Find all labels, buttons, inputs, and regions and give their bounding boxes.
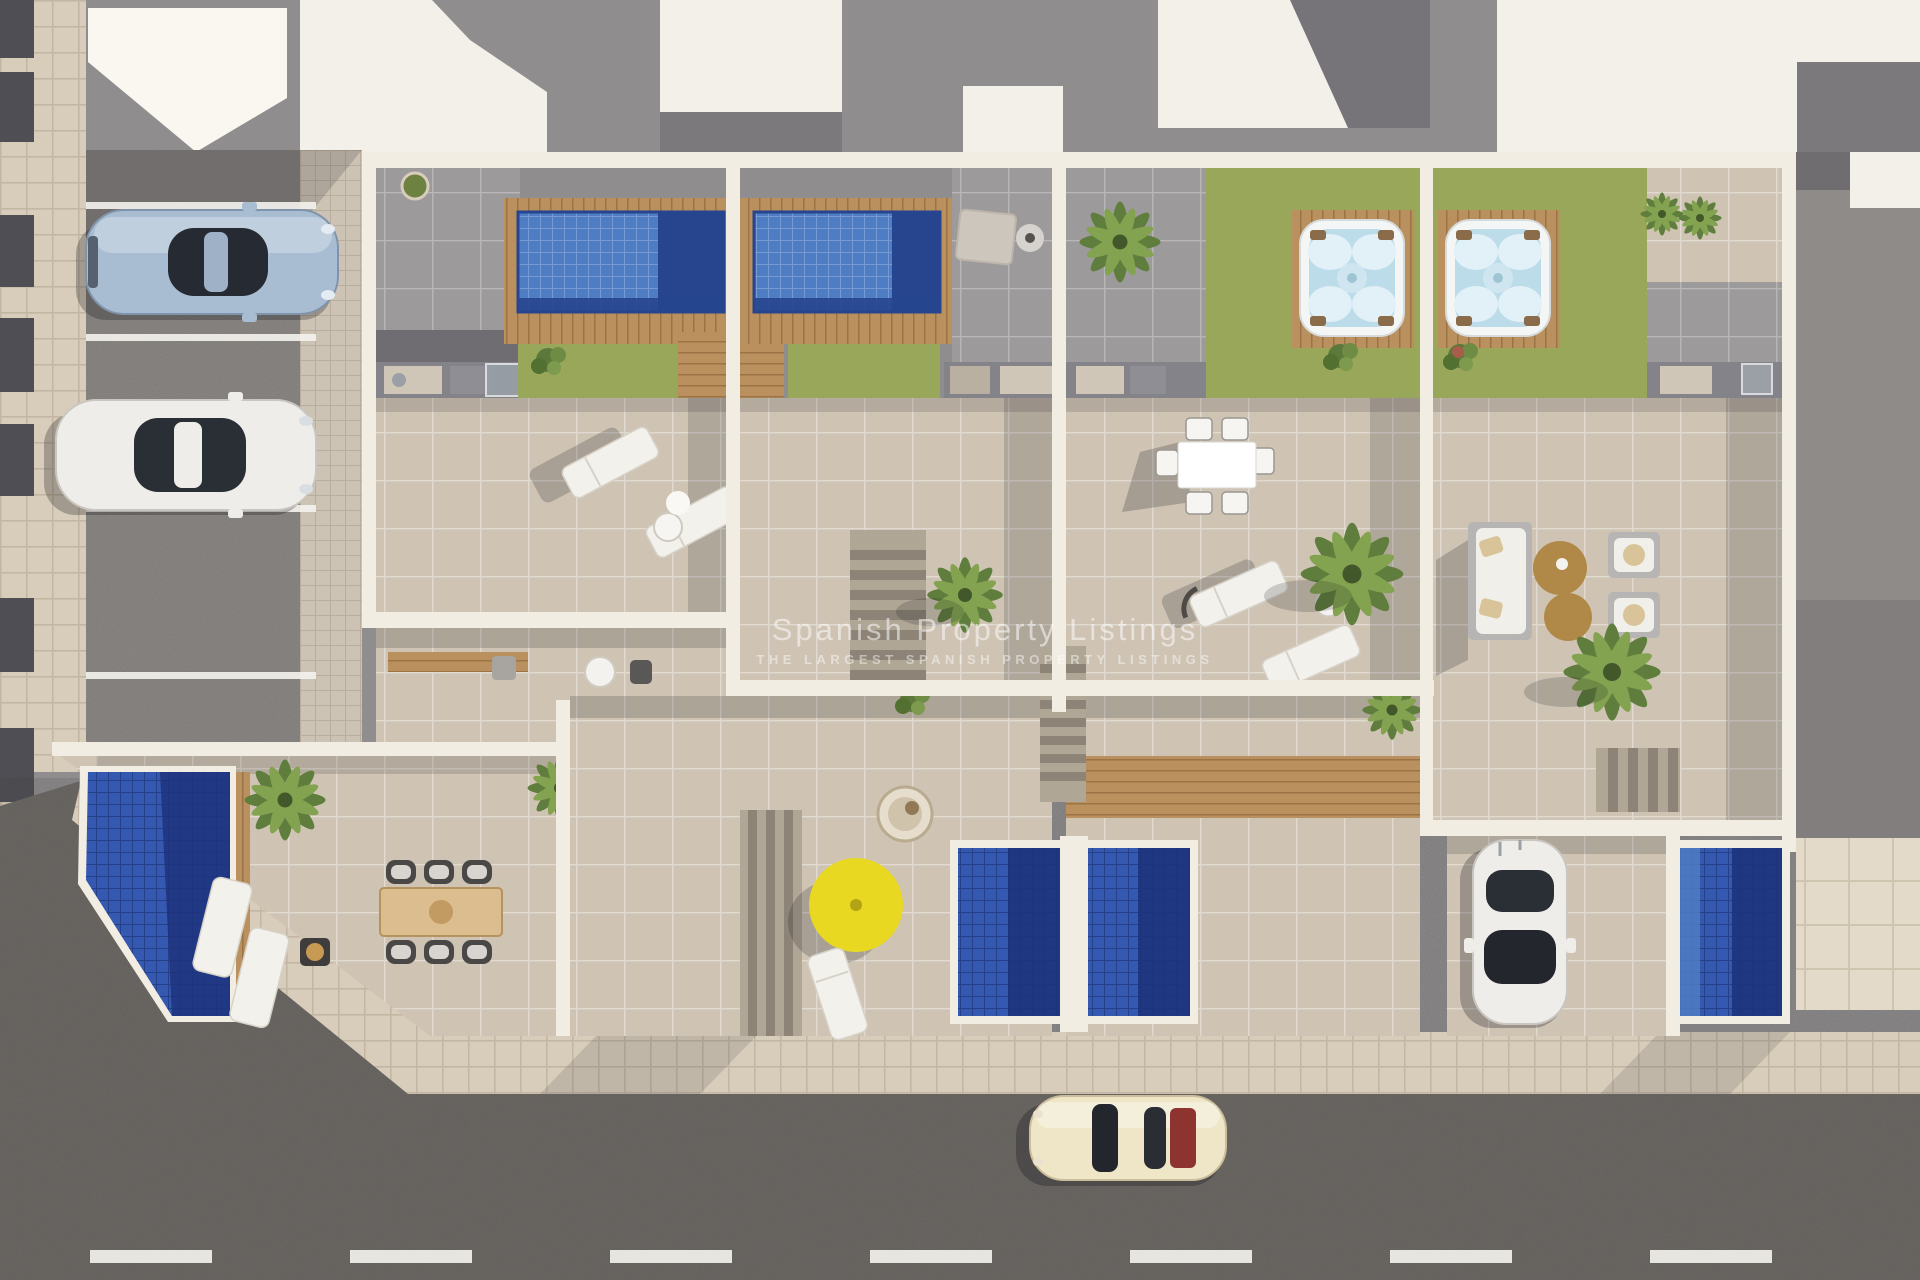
sidewalk-left-strip	[34, 0, 86, 772]
pool-edge	[754, 298, 940, 312]
unit3-roof-terrace	[1066, 166, 1420, 720]
neighbor-building-right	[1796, 152, 1920, 1010]
gray-patio	[376, 166, 520, 332]
wall-shadow	[1433, 398, 1782, 412]
white-roof	[660, 0, 842, 112]
wall-shadow	[1370, 398, 1420, 680]
dining-table	[1178, 442, 1256, 488]
garden-wall	[52, 742, 564, 756]
patio-shadow	[376, 330, 520, 362]
wall-shadow	[376, 628, 740, 648]
unit4-roof-terrace	[1433, 166, 1782, 820]
chair	[630, 660, 652, 684]
white-roof-corner	[1850, 152, 1920, 208]
rear-vent	[88, 236, 98, 288]
planter	[492, 656, 516, 680]
car-mirror	[228, 509, 243, 518]
pool-side-wall	[1666, 836, 1680, 1036]
round-coffee-table	[1544, 593, 1592, 641]
outdoor-shower	[1742, 364, 1772, 394]
bbq-grill	[1130, 366, 1166, 394]
white-roof	[1797, 0, 1920, 62]
palm-plant	[1080, 202, 1161, 283]
windshield	[1484, 930, 1556, 984]
pool-deep-end	[658, 212, 724, 312]
headlight	[1033, 1110, 1043, 1118]
bistro-table	[585, 657, 615, 687]
unit4-ground	[1447, 836, 1790, 1036]
wall-front-unit1	[362, 612, 740, 628]
small-palm	[1640, 192, 1683, 235]
paver-court	[1796, 838, 1920, 1010]
car-mirror	[1566, 938, 1576, 953]
car-mirror	[242, 313, 257, 322]
wall-shadow	[740, 398, 1052, 412]
garden-dining-set	[380, 860, 502, 964]
headlight	[321, 224, 335, 234]
staircase	[1596, 748, 1680, 812]
unit1-roof-terrace	[376, 166, 745, 612]
roof-shade	[1796, 600, 1920, 838]
classic-car	[1016, 1096, 1226, 1186]
outdoor-shower	[486, 364, 520, 396]
pool-shadow	[1138, 848, 1190, 1016]
pool-edge	[518, 298, 724, 312]
wall-shadow	[1004, 398, 1052, 680]
headlight	[299, 416, 313, 426]
pool-deep-end	[892, 212, 940, 312]
outdoor-kitchen-counter	[1660, 366, 1712, 394]
palm-shadow	[1524, 677, 1608, 707]
wall-left	[362, 152, 376, 628]
roof-shadow	[1797, 62, 1920, 166]
sofa-shadow	[1436, 540, 1468, 676]
pool-shadow	[1732, 848, 1782, 1016]
hot-tub-1	[1292, 210, 1414, 348]
potted-plant	[402, 173, 428, 199]
cup	[1556, 558, 1568, 570]
palm-shadow	[896, 598, 964, 626]
pool-divider-wall	[1060, 836, 1088, 1032]
rear-window	[1486, 870, 1554, 912]
windshield	[1092, 1104, 1118, 1172]
wall-front-unit4	[1433, 820, 1795, 836]
rear-window	[1144, 1107, 1166, 1169]
side-table	[654, 513, 682, 541]
car-mirror	[242, 202, 257, 211]
garden-wall-side	[556, 700, 570, 1036]
wall-right	[1782, 152, 1796, 852]
car-mirror	[228, 392, 243, 401]
wall-shadow	[570, 696, 1052, 718]
sphere-lamp	[666, 491, 690, 515]
unit2-roof-terrace	[740, 166, 1066, 690]
palm-shadow	[1264, 580, 1352, 612]
armchair	[1608, 532, 1660, 578]
wall-shadow	[1066, 398, 1420, 412]
hanging-egg-chair	[878, 787, 932, 841]
palm-plant	[245, 760, 326, 841]
wall-shadow	[376, 398, 726, 412]
outdoor-kitchen-counter	[950, 366, 990, 394]
scene-canvas	[0, 0, 1920, 1280]
wall-front-unit3	[1066, 680, 1434, 696]
engine-cover	[1170, 1108, 1196, 1168]
bbq-grill	[1000, 366, 1056, 394]
wall-top	[362, 152, 1795, 168]
small-palm	[1678, 196, 1721, 239]
aerial-render: Spanish Property Listings THE LARGEST SP…	[0, 0, 1920, 1280]
car-mirror	[1464, 938, 1474, 953]
wall-divider-3	[1420, 152, 1433, 836]
pool-shallow-step	[1680, 848, 1700, 1016]
hot-tub-2	[1438, 210, 1560, 348]
fire-table-bowl	[306, 943, 324, 961]
headlight	[299, 484, 313, 494]
white-roof	[1497, 0, 1802, 152]
fire-bowl-center	[1025, 233, 1035, 243]
wood-walkway	[1066, 756, 1420, 818]
pool-shadow	[1008, 848, 1060, 1016]
white-hatchback	[1460, 840, 1576, 1028]
gray-pad	[1647, 282, 1782, 362]
headlight	[1033, 1158, 1043, 1166]
sink	[392, 373, 406, 387]
outdoor-kitchen-counter	[1076, 366, 1124, 394]
headlight	[321, 290, 335, 300]
outdoor-rug	[956, 209, 1017, 265]
wall-shadow	[1726, 398, 1782, 820]
table-centerpiece	[429, 900, 453, 924]
wall-divider-2	[1052, 152, 1066, 712]
white-sedan	[44, 392, 316, 518]
parasol-pole	[850, 899, 862, 911]
sports-car	[76, 202, 338, 322]
wall-front-unit2	[740, 680, 1066, 696]
